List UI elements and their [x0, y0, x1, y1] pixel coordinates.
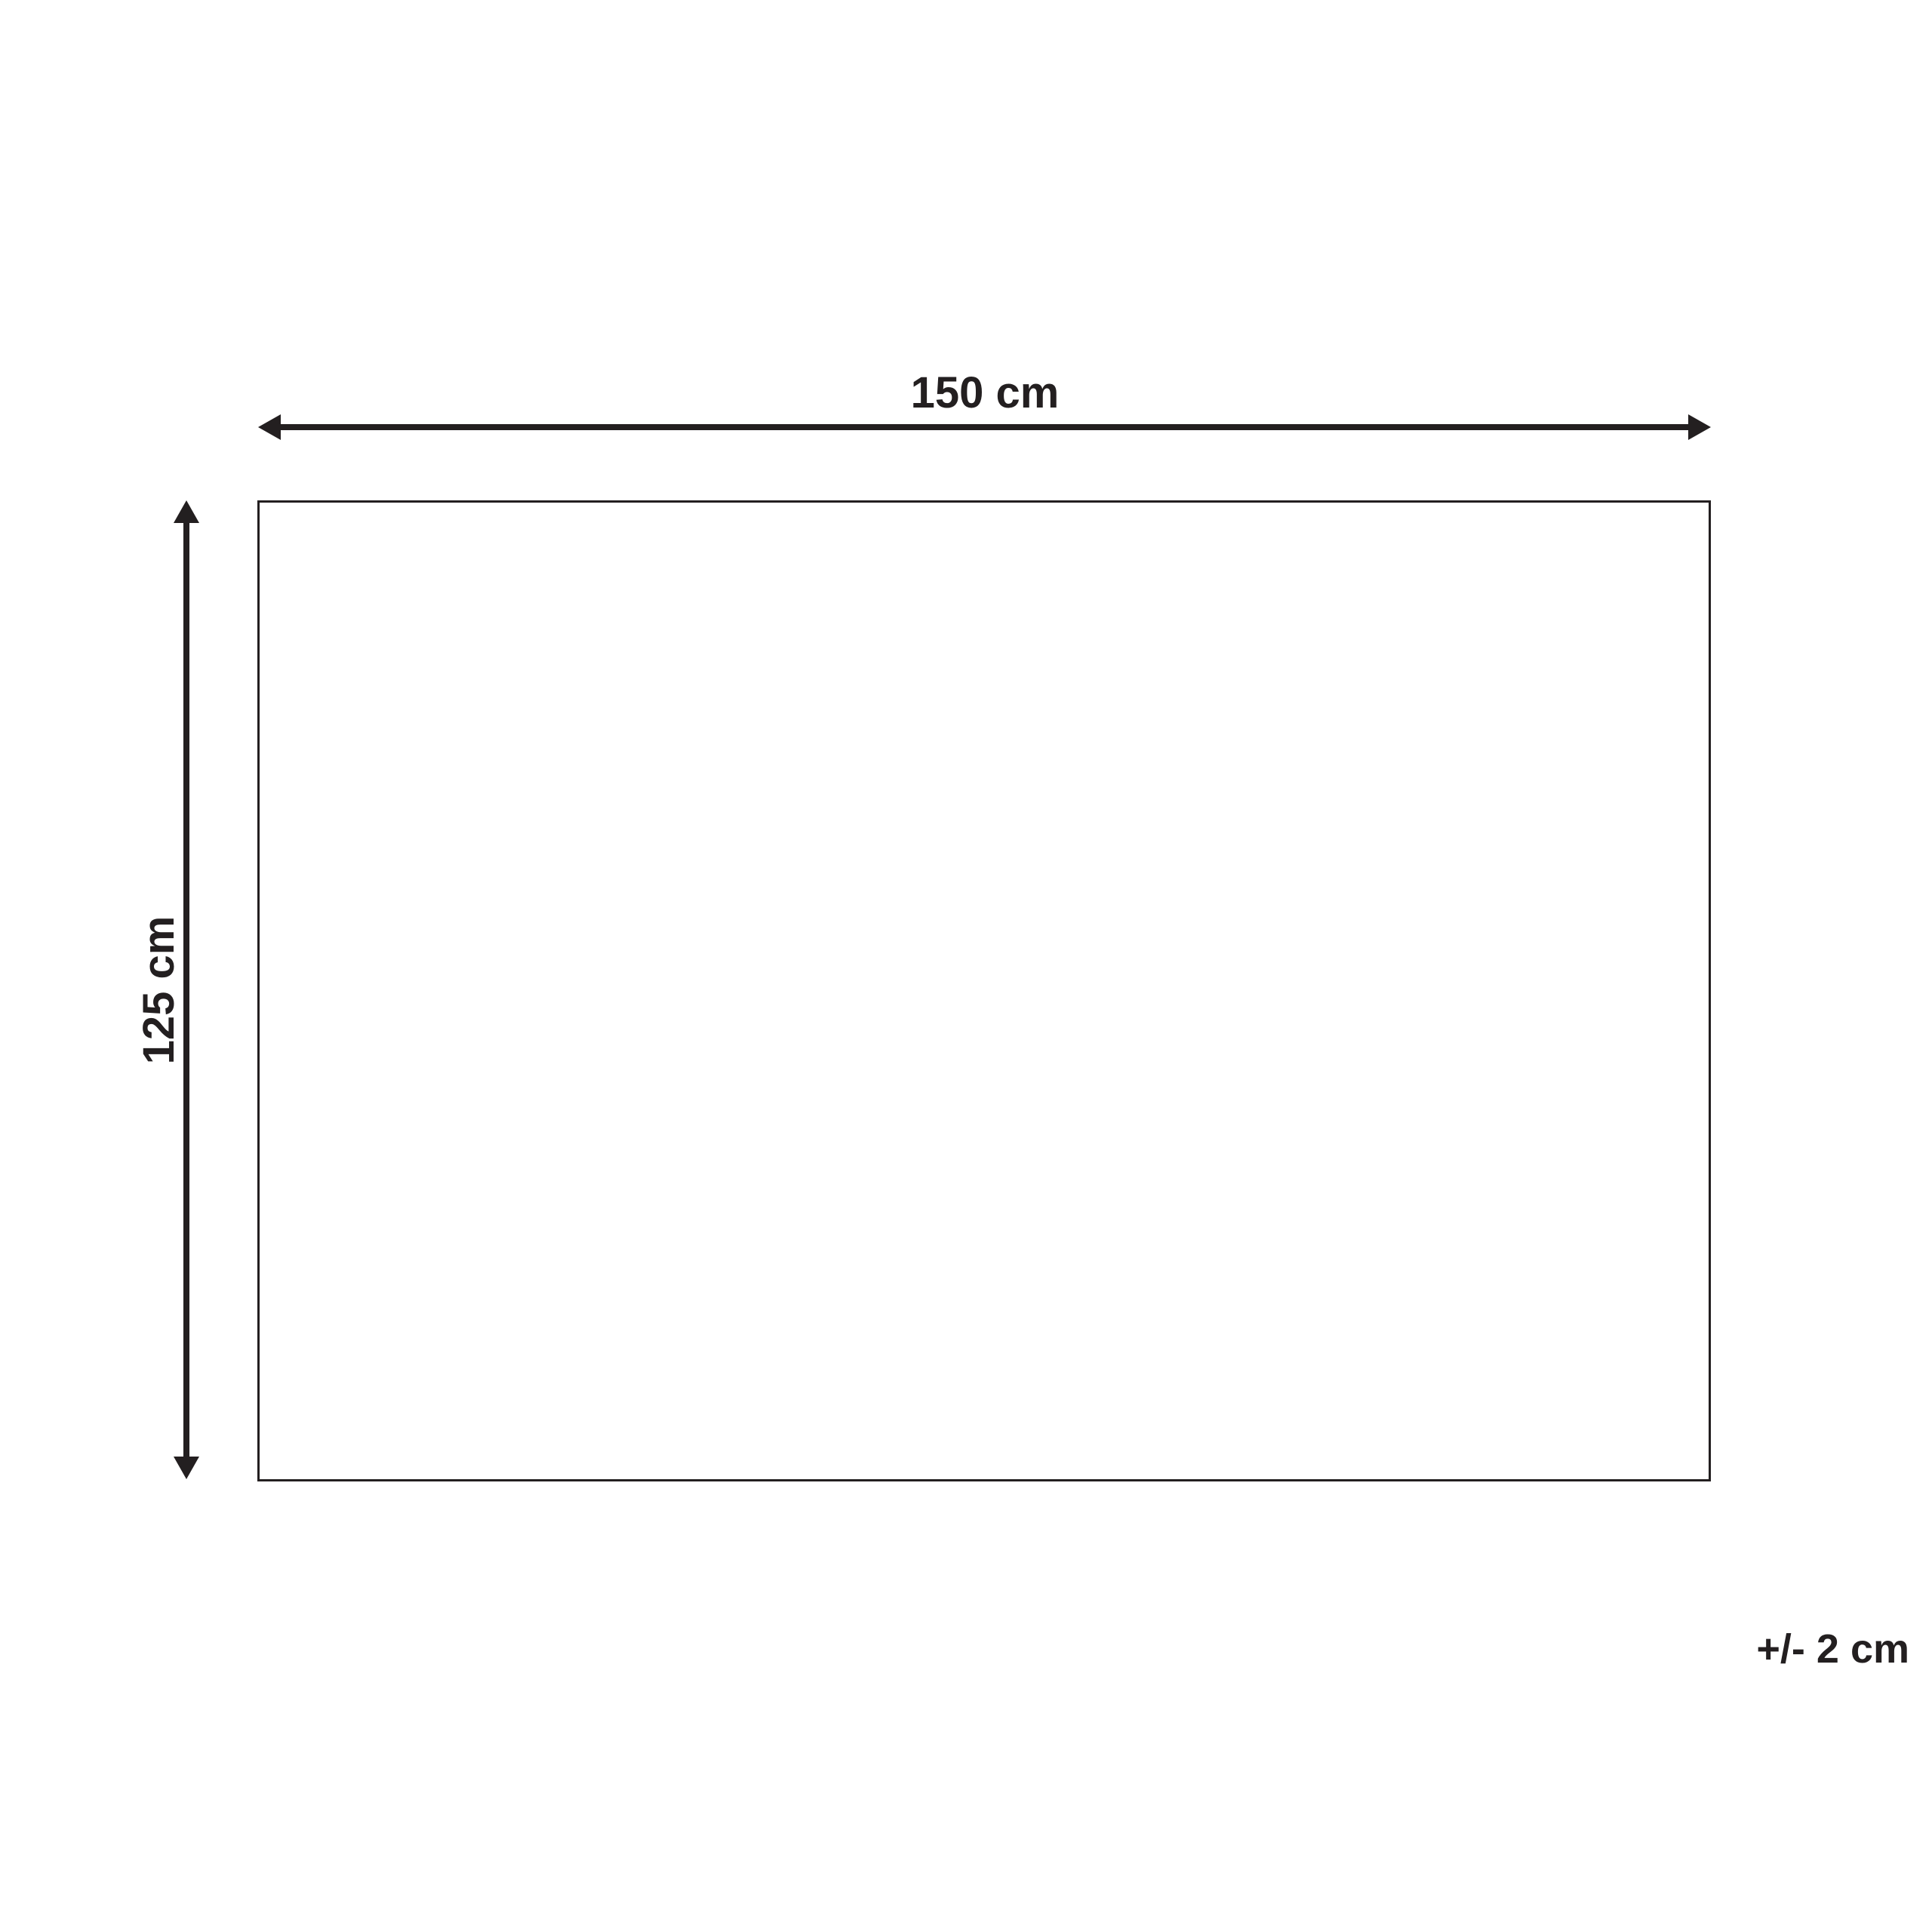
arrowhead-up-icon: [174, 500, 199, 523]
width-dimension-label: 150 cm: [796, 371, 1174, 415]
horizontal-arrow-shaft: [276, 424, 1693, 430]
product-outline-rectangle: [257, 500, 1711, 1481]
arrowhead-down-icon: [174, 1457, 199, 1479]
vertical-arrow-shaft: [183, 518, 189, 1461]
tolerance-label: +/- 2 cm: [1660, 1629, 1909, 1669]
arrowhead-right-icon: [1688, 414, 1711, 440]
height-dimension-label: 125 cm: [137, 801, 181, 1179]
dimension-diagram: 150 cm 125 cm +/- 2 cm: [0, 0, 1932, 1932]
arrowhead-left-icon: [258, 414, 281, 440]
